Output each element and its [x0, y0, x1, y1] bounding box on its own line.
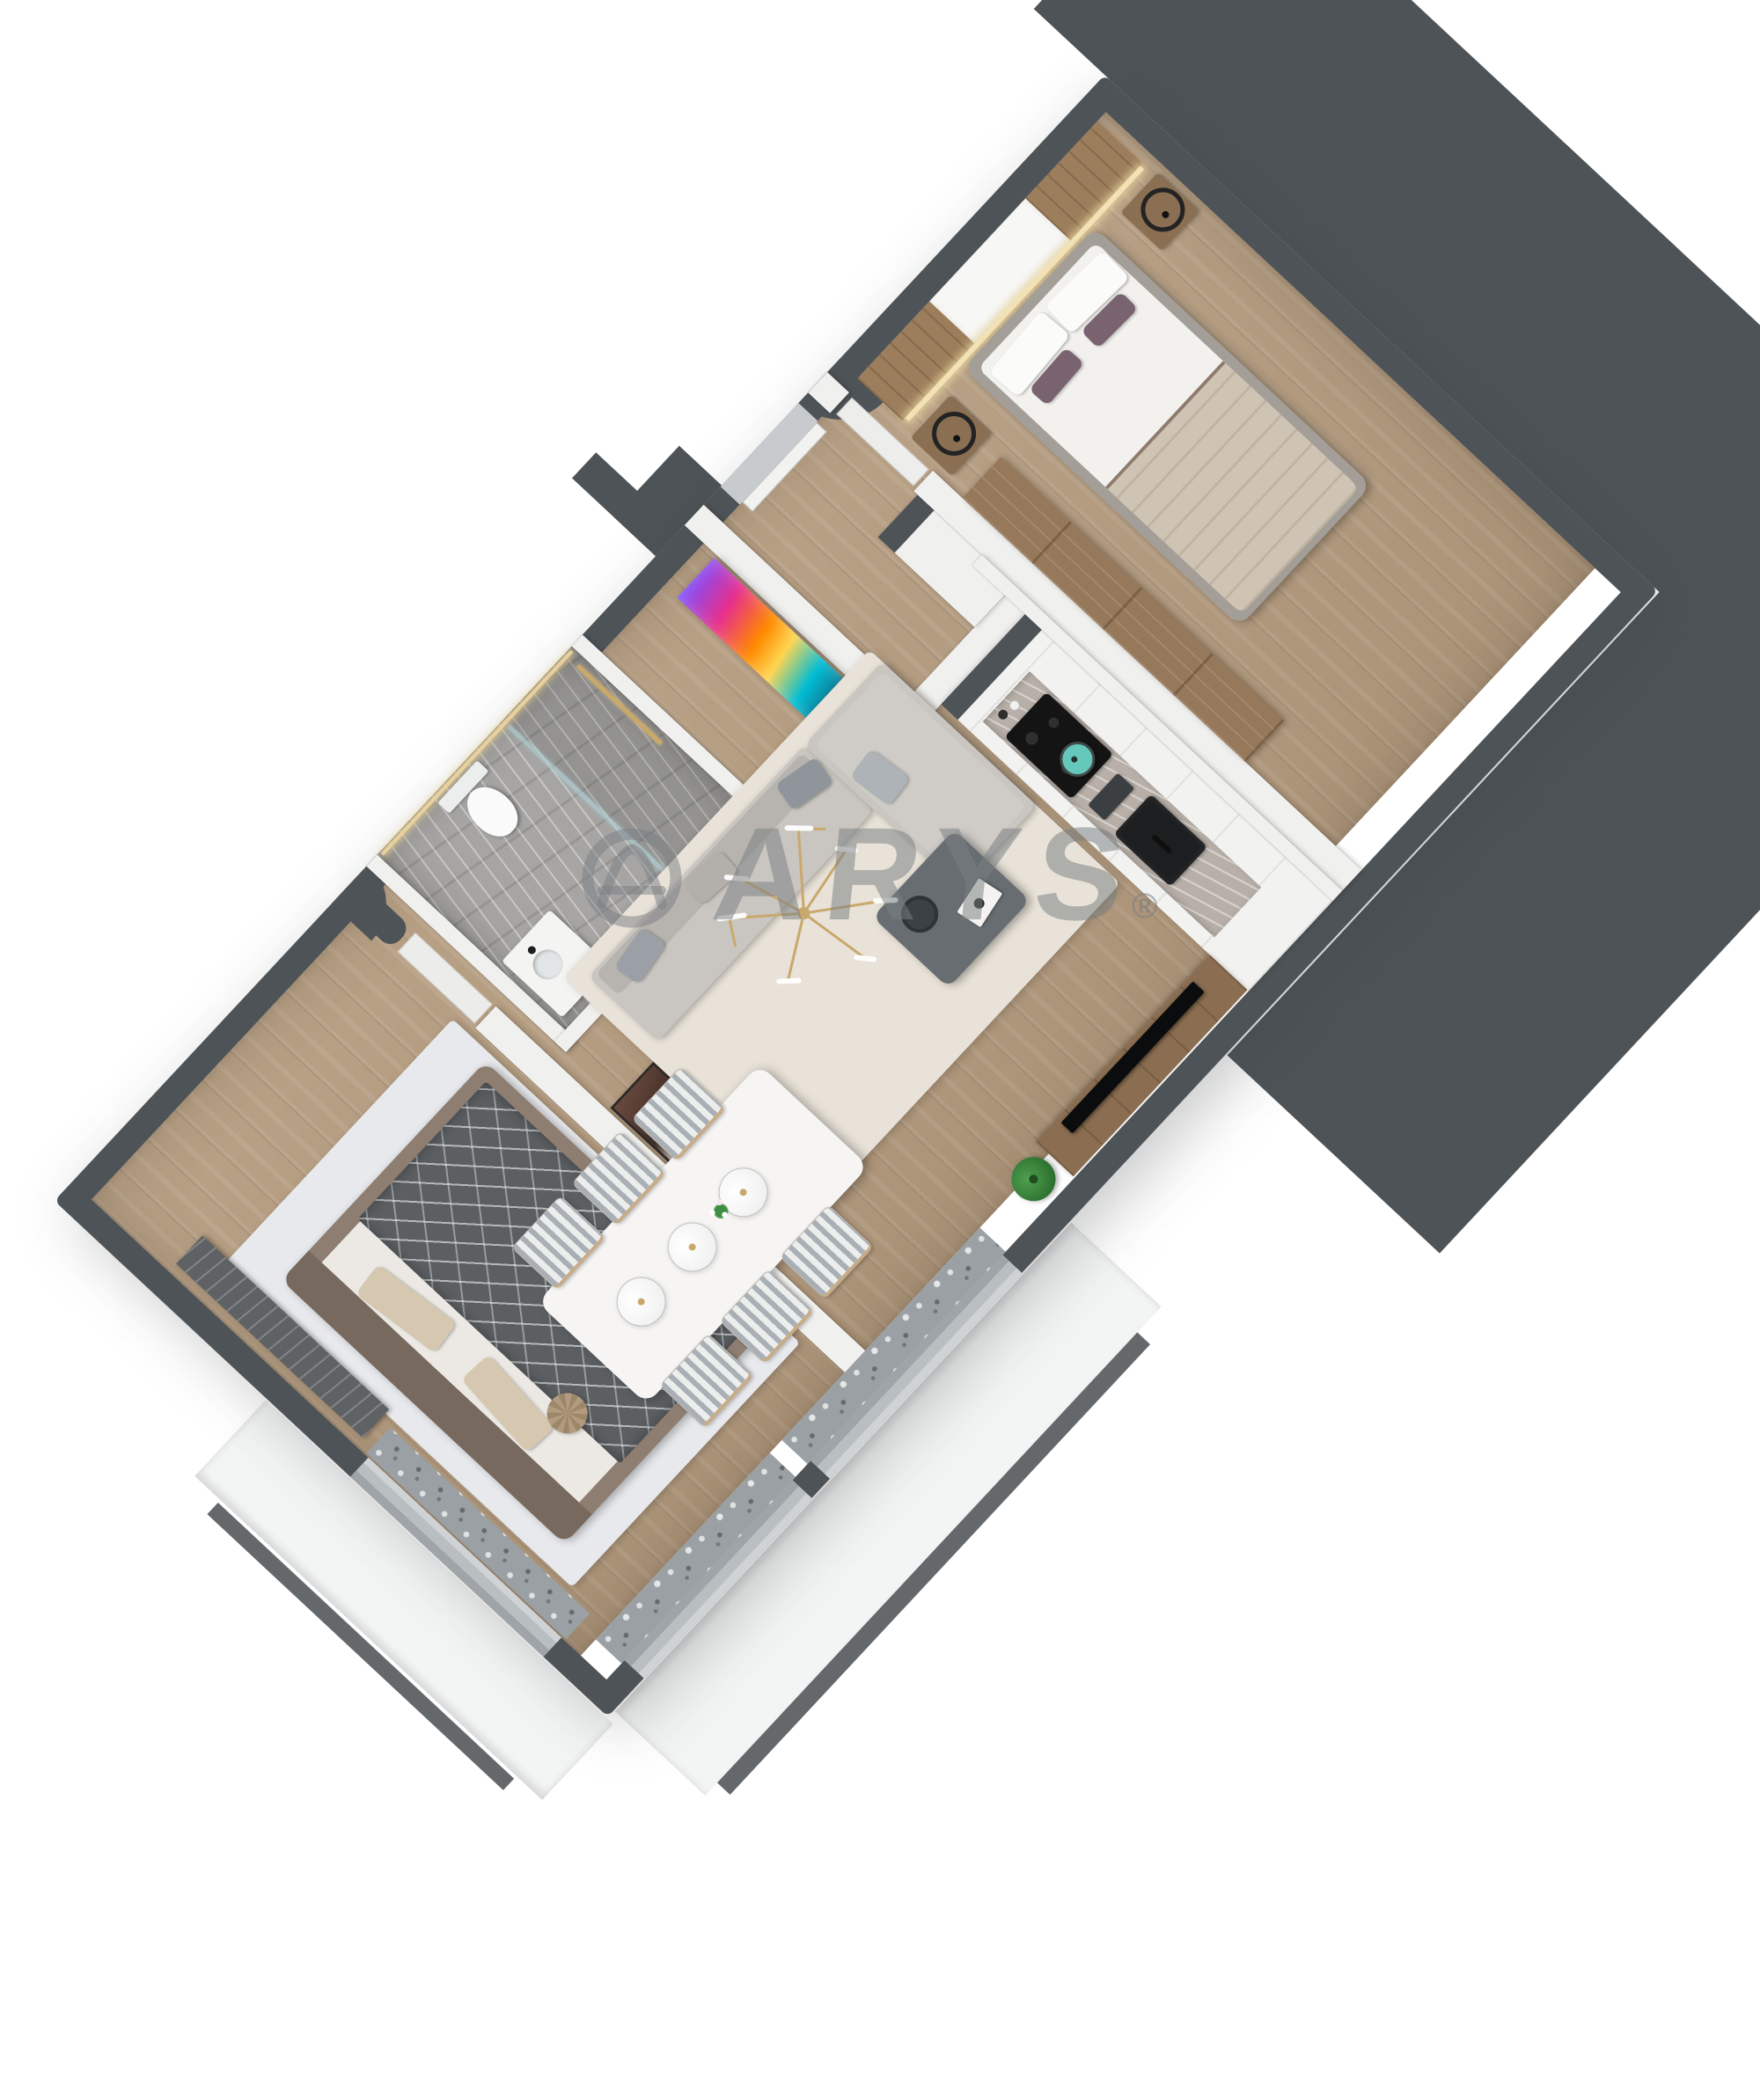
floor-plan-scene — [0, 0, 1760, 2100]
watermark-brand-text: ARYS — [708, 808, 1147, 940]
arys-circle-a-logo-icon — [570, 816, 693, 940]
watermark-registered-mark: ® — [1132, 887, 1157, 926]
